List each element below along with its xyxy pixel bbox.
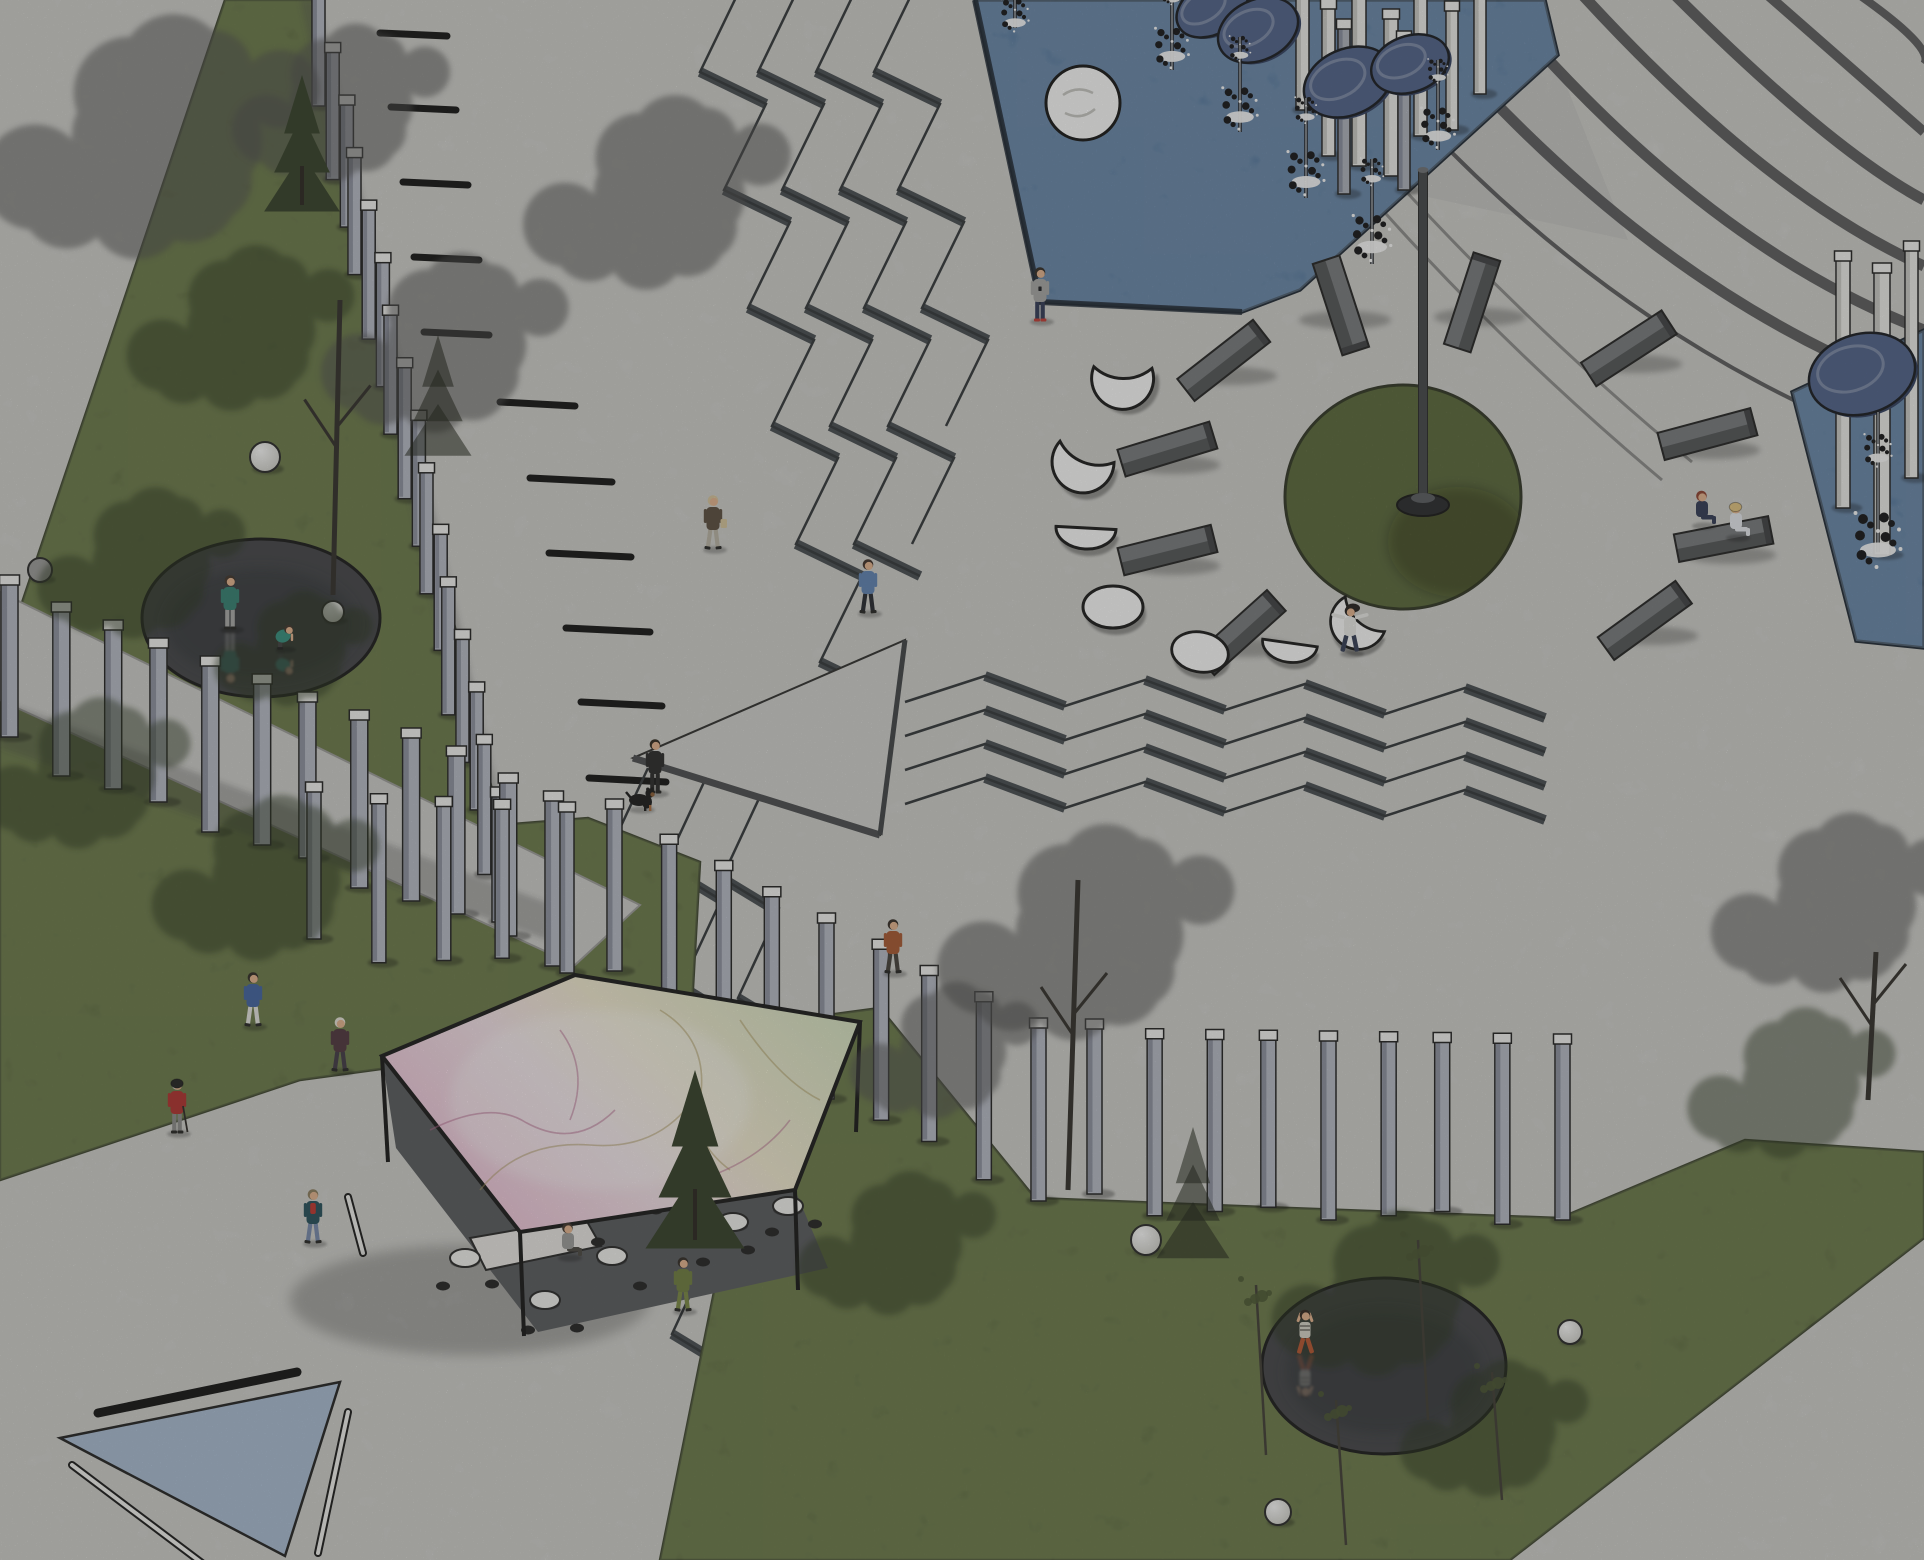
layer-paper-grain	[0, 0, 1924, 1560]
plaza-illustration: Axonometric architectural rendering of a…	[0, 0, 1924, 1560]
plaza-site-plan-svg	[0, 0, 1924, 1560]
paper-grain	[0, 0, 1924, 1560]
